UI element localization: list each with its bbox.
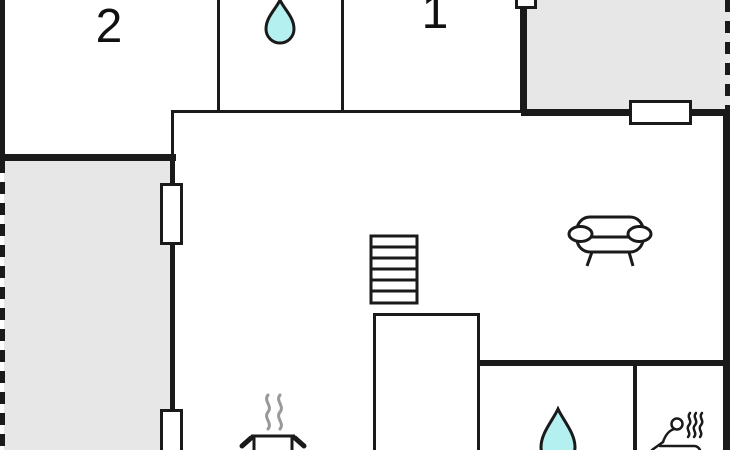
terrace-top-right-area	[527, 0, 730, 109]
wall-room1-right	[520, 6, 527, 113]
water-drop-icon-top	[261, 0, 299, 46]
wall-left-connector	[171, 110, 174, 156]
terrace-right-dashed-edge	[725, 0, 730, 109]
wall-room2-bottom	[0, 154, 176, 161]
cooking-pot-icon	[235, 392, 315, 450]
door-marker-top	[515, 0, 537, 9]
wall-divider-bath-room1	[341, 0, 344, 112]
room-2-label: 2	[86, 3, 132, 51]
room-1-label: 1	[413, 0, 457, 37]
wall-outer-right	[723, 109, 730, 450]
terrace-left-dashed-edge	[0, 161, 5, 450]
terrace-left-area	[4, 161, 171, 450]
sofa-icon	[560, 205, 660, 270]
wall-divider-room2-bath	[217, 0, 220, 112]
wall-bath-sauna-top	[477, 360, 725, 366]
wall-bath-sauna-divider	[633, 366, 637, 450]
floor-plan: 2 1	[0, 0, 730, 450]
room-under-stairs	[373, 313, 480, 450]
window-left-lower	[160, 409, 183, 450]
wall-outer-left	[0, 0, 5, 161]
window-top-right	[629, 100, 692, 125]
window-left-upper	[160, 183, 183, 245]
stairs-icon	[369, 234, 419, 306]
water-drop-icon-bottom	[536, 406, 580, 450]
wall-terrace-left-lower	[170, 243, 175, 411]
wall-top-horizontal	[171, 110, 522, 113]
sauna-person-icon	[648, 404, 710, 450]
wall-terrace2-bottom	[521, 109, 730, 116]
